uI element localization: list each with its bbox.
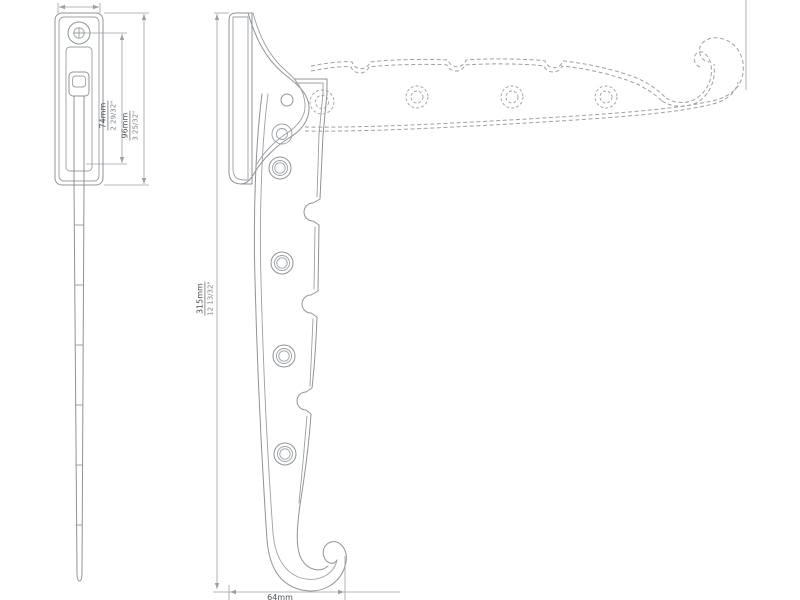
dimension-label-64mm: 64mm	[256, 594, 304, 600]
arm-right-outer-edge-with-notches	[297, 93, 327, 505]
side-plate-inner-line	[59, 17, 99, 181]
eyelet-hole	[277, 258, 287, 268]
arm-left-outer-edge	[254, 94, 267, 540]
arrowhead	[215, 583, 219, 589]
arm-right-inner-segment	[299, 416, 307, 503]
dimension-inch-value: 12 13/32"	[206, 281, 215, 316]
dimension-mm-value: 96mm	[120, 111, 130, 141]
pivot-hole	[281, 94, 293, 106]
side-view	[55, 13, 103, 581]
arrowhead	[93, 5, 99, 9]
raised-eyelet-outer	[406, 86, 428, 108]
arm-hook	[267, 505, 346, 591]
arrowhead	[120, 157, 124, 163]
dimension-inch-value: 3 25/32"	[131, 111, 140, 141]
dimension-label-315mm: 315mm 12 13/32"	[195, 269, 214, 329]
raised-eyelet-hole	[411, 91, 423, 103]
raised-hook-inner-second	[662, 64, 714, 106]
eyelet-hole	[280, 449, 290, 459]
raised-arm-bottom-edge-inner	[305, 82, 738, 131]
raised-eyelet-hole	[506, 91, 518, 103]
raised-arm-dashed	[305, 38, 743, 131]
folded-arm	[254, 93, 327, 540]
front-view-dimensions	[213, 0, 746, 600]
raised-arm-top-edge	[311, 59, 666, 98]
arrowhead	[142, 14, 146, 20]
arm-eyelets	[269, 157, 296, 465]
raised-eyelet-outer	[595, 86, 617, 108]
arrowhead	[215, 14, 219, 20]
dimension-mm-value: 24mm	[66, 0, 92, 2]
eyelet-hole	[275, 163, 285, 173]
arm-right-inner-segment	[314, 227, 315, 289]
arrowhead	[338, 590, 344, 594]
dimension-label-74mm: 74mm 2 29/32"	[98, 86, 117, 146]
plate-slot	[66, 47, 92, 171]
wall-plate-inner-line	[233, 17, 248, 180]
dimension-label-96mm: 96mm 3 25/32"	[120, 96, 139, 156]
side-folded-arm	[74, 96, 84, 581]
wall-plate	[229, 13, 252, 184]
raised-arm-holes-dashed	[406, 86, 617, 108]
raised-eyelet-outer	[501, 86, 523, 108]
raised-hook-inner	[666, 52, 711, 103]
drawing-svg	[0, 0, 800, 600]
arrowhead	[230, 590, 236, 594]
front-view	[229, 13, 743, 591]
hook-inner-curve	[273, 533, 337, 579]
eyelet-hole	[279, 351, 289, 361]
arrowhead	[120, 34, 124, 40]
raised-eyelet-hole	[600, 91, 612, 103]
wall-plate-outline	[229, 13, 252, 184]
dimension-inch-value: 2 29/32"	[109, 101, 118, 131]
arrowhead	[142, 178, 146, 184]
pivot-step-inner	[295, 83, 323, 95]
gusset-inner-line	[253, 13, 305, 164]
dimension-mm-value: 64mm	[267, 593, 293, 600]
hook-throat-curve	[297, 505, 328, 570]
pivot-block-detail	[73, 76, 86, 87]
arrowhead	[59, 5, 65, 9]
raised-arm-bottom-edge	[305, 38, 743, 127]
dimension-mm-value: 315mm	[195, 281, 205, 316]
gusset-bracket	[241, 13, 327, 184]
pivot-boss-outer	[272, 124, 292, 144]
dimension-mm-value: 74mm	[98, 101, 108, 131]
side-arm-edges	[74, 96, 84, 581]
technical-drawing-canvas: 24mm 74mm 2 29/32" 96mm 3 25/32" 315mm 1…	[0, 0, 800, 600]
dimension-label-plate-width: 24mm	[55, 0, 103, 3]
arm-right-inner-segment	[310, 319, 313, 386]
